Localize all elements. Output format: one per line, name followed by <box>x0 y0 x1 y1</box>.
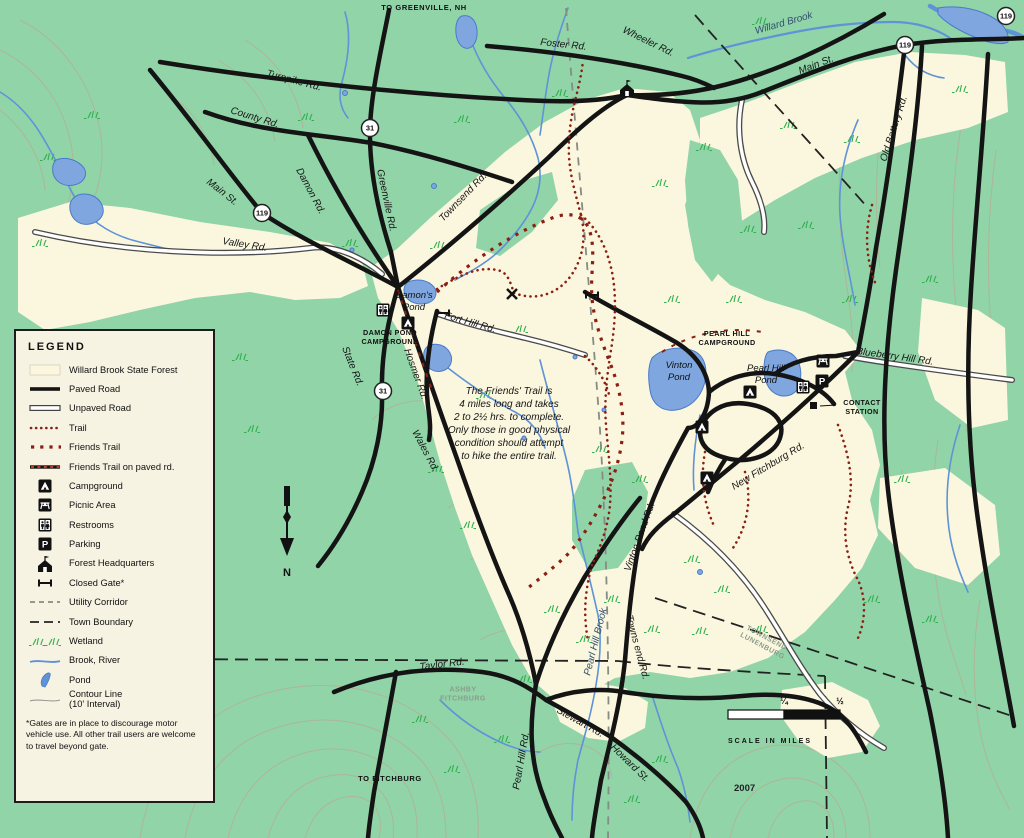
parking-icon <box>816 375 829 388</box>
campground-icon <box>26 478 64 494</box>
campground-icon <box>696 421 709 434</box>
route-shield-119: 119 <box>998 8 1015 25</box>
legend-item-friends-trail: Friends Trail <box>26 438 203 457</box>
forest-swatch <box>26 363 64 377</box>
campground-icon <box>402 317 415 330</box>
scale-half-label: ½ <box>836 696 844 706</box>
wetland-swatch <box>26 634 64 648</box>
contour-swatch <box>26 692 64 706</box>
legend-item-campground: Campground <box>26 476 203 495</box>
legend-item-wetland: Wetland <box>26 631 203 650</box>
legend-item-brook-river: Brook, River <box>26 651 203 670</box>
parking-icon <box>26 536 64 552</box>
friends-trail-swatch <box>26 440 64 454</box>
legend-item-utility-corridor: Utility Corridor <box>26 593 203 612</box>
trail-map: P <box>0 0 1024 838</box>
picnic-area-icon <box>817 355 830 368</box>
legend-item-state-forest: Willard Brook State Forest <box>26 360 203 379</box>
campground-icon <box>701 472 714 485</box>
restrooms-icon <box>377 304 390 317</box>
svg-text:31: 31 <box>366 124 374 133</box>
contact-station-marker <box>810 402 817 409</box>
legend-item-headquarters: Forest Headquarters <box>26 554 203 573</box>
legend-item-paved-road: Paved Road <box>26 379 203 398</box>
north-arrow-label: N <box>283 567 291 579</box>
legend: LEGEND Willard Brook State Forest Paved … <box>14 329 215 803</box>
map-year: 2007 <box>734 783 755 794</box>
restrooms-icon <box>797 381 810 394</box>
route-shield-119: 119 <box>254 205 271 222</box>
label-to-greenville: TO GREENVILLE, NH <box>381 3 467 12</box>
utility-corridor-swatch <box>26 595 64 609</box>
closed-gate-icon <box>26 577 64 589</box>
route-shield-31: 31 <box>375 383 392 400</box>
route-shield-119: 119 <box>897 37 914 54</box>
legend-item-unpaved-road: Unpaved Road <box>26 399 203 418</box>
pond-swatch <box>26 671 64 689</box>
legend-item-parking: Parking <box>26 535 203 554</box>
campground-icon <box>744 386 757 399</box>
brook-swatch <box>26 654 64 668</box>
svg-text:119: 119 <box>1000 12 1012 21</box>
restrooms-icon <box>26 517 64 533</box>
scale-caption: SCALE IN MILES <box>728 738 812 745</box>
legend-item-picnic: Picnic Area <box>26 496 203 515</box>
legend-item-pond: Pond <box>26 670 203 689</box>
trail-swatch <box>26 421 64 435</box>
town-boundary-swatch <box>26 615 64 629</box>
svg-text:119: 119 <box>899 41 911 50</box>
friends-trail-paved-swatch <box>26 460 64 474</box>
legend-item-friends-trail-paved: Friends Trail on paved rd. <box>26 457 203 476</box>
paved-road-swatch <box>26 382 64 396</box>
legend-item-contour: Contour Line (10' Interval) <box>26 690 203 709</box>
route-shield-31: 31 <box>362 120 379 137</box>
legend-item-restrooms: Restrooms <box>26 515 203 534</box>
label-to-fitchburg: TO FITCHBURG <box>358 774 422 783</box>
svg-text:31: 31 <box>379 387 387 396</box>
legend-title: LEGEND <box>28 341 203 353</box>
unpaved-road-swatch <box>26 401 64 415</box>
picnic-area-icon <box>26 497 64 513</box>
svg-text:119: 119 <box>256 209 268 218</box>
legend-footnote: *Gates are in place to discourage motor … <box>26 718 203 752</box>
forest-headquarters-icon <box>26 555 64 573</box>
legend-item-town-boundary: Town Boundary <box>26 612 203 631</box>
legend-item-trail: Trail <box>26 418 203 437</box>
legend-item-closed-gate: Closed Gate* <box>26 573 203 592</box>
